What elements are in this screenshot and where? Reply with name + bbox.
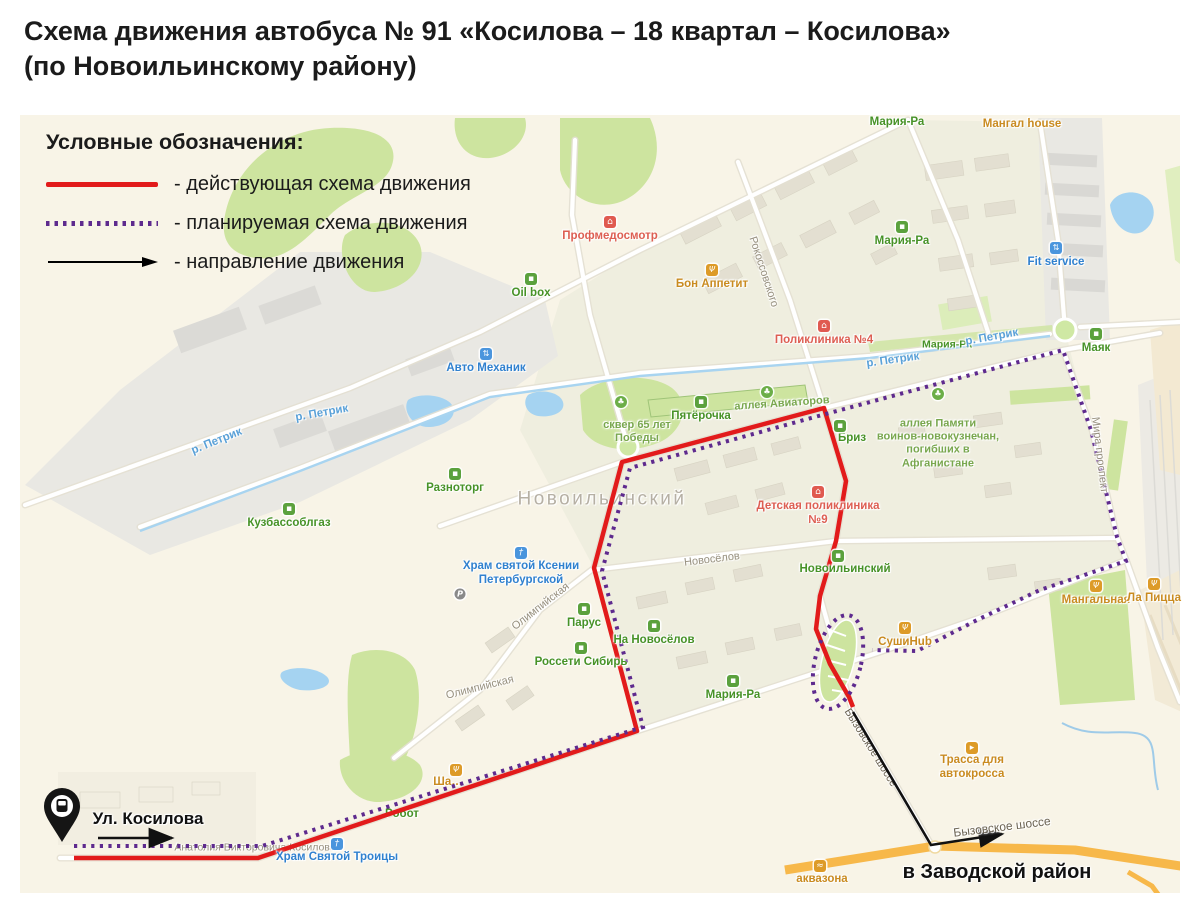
legend-item-current: - действующая схема движения — [46, 170, 471, 198]
legend-planned-route-swatch — [46, 221, 158, 226]
legend-item-planned: - планируемая схема движения — [46, 209, 471, 237]
legend-item-label: - направление движения — [174, 251, 404, 274]
bus-stop-pin-icon — [44, 788, 80, 842]
legend-item-label: - действующая схема движения — [174, 173, 471, 196]
legend-item-direction: - направление движения — [46, 248, 471, 276]
legend-item-label: - планируемая схема движения — [174, 212, 467, 235]
map-legend: Условные обозначения: - действующая схем… — [46, 130, 471, 287]
legend-arrow-swatch — [46, 254, 158, 270]
legend-current-route-swatch — [46, 182, 158, 187]
direction-arrow-zavodskoy — [853, 712, 1002, 845]
current-route-line — [74, 408, 853, 858]
bus-route-scheme-page: Новоильинский Бызовское шоссе Анатолия В… — [0, 0, 1200, 901]
title-line-1: Схема движения автобуса № 91 «Косилова –… — [24, 14, 951, 49]
title-line-2: (по Новоильинскому району) — [24, 49, 951, 84]
page-title: Схема движения автобуса № 91 «Косилова –… — [24, 14, 951, 84]
legend-heading: Условные обозначения: — [46, 130, 471, 155]
